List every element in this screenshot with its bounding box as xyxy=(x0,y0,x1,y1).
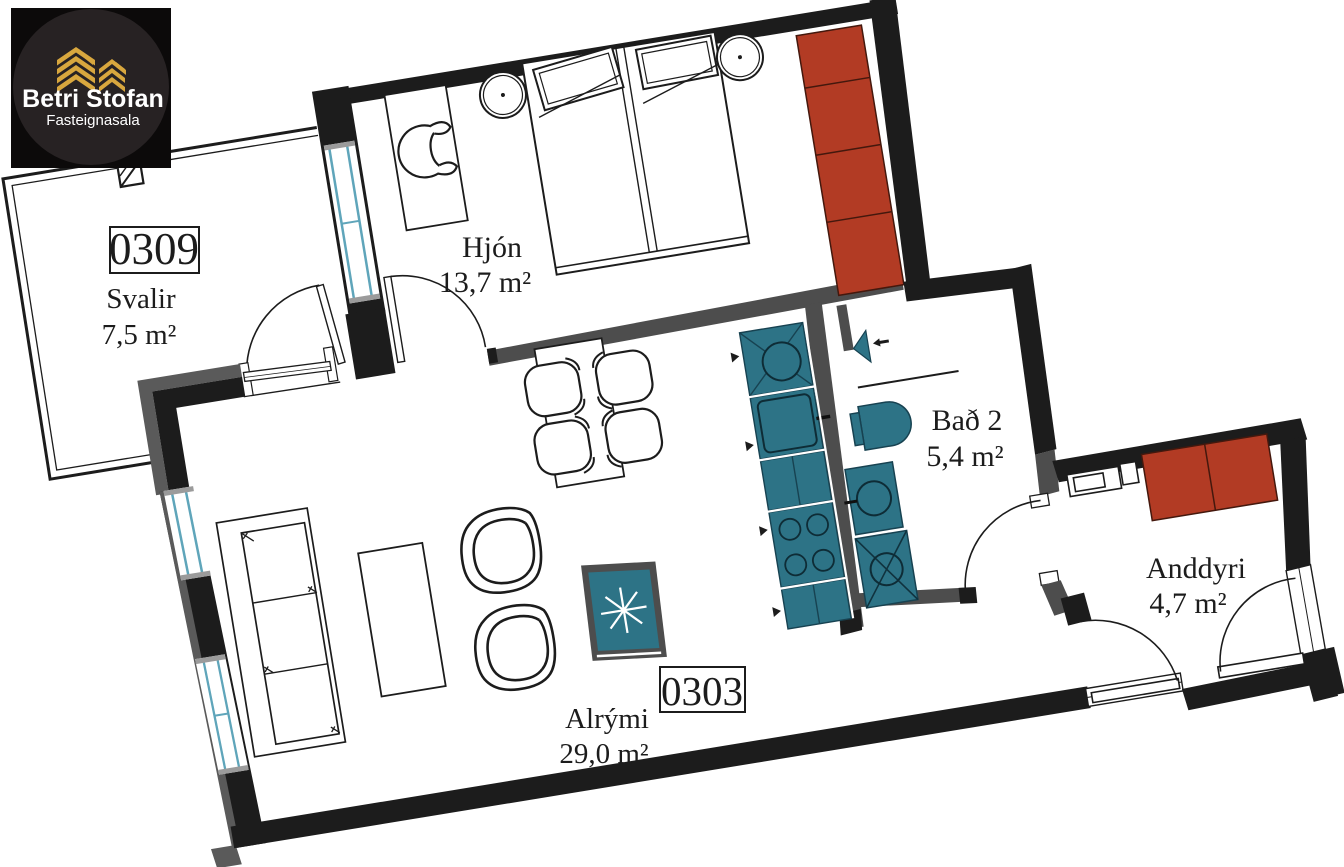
svg-text:Fasteignasala: Fasteignasala xyxy=(46,112,140,129)
svg-text:5,4 m²: 5,4 m² xyxy=(926,440,1003,473)
svg-text:0309: 0309 xyxy=(109,224,199,274)
svg-text:Svalir: Svalir xyxy=(106,283,176,315)
svg-text:Alrými: Alrými xyxy=(565,703,649,735)
svg-text:4,7 m²: 4,7 m² xyxy=(1149,587,1226,620)
svg-text:13,7 m²: 13,7 m² xyxy=(439,266,531,299)
svg-text:Betri Stofan: Betri Stofan xyxy=(22,85,164,113)
svg-text:Bað 2: Bað 2 xyxy=(932,404,1003,437)
svg-text:29,0 m²: 29,0 m² xyxy=(559,738,649,770)
svg-text:7,5 m²: 7,5 m² xyxy=(102,319,177,351)
svg-text:Hjón: Hjón xyxy=(462,231,522,264)
svg-text:0303: 0303 xyxy=(661,668,743,714)
svg-text:Anddyri: Anddyri xyxy=(1146,552,1246,585)
